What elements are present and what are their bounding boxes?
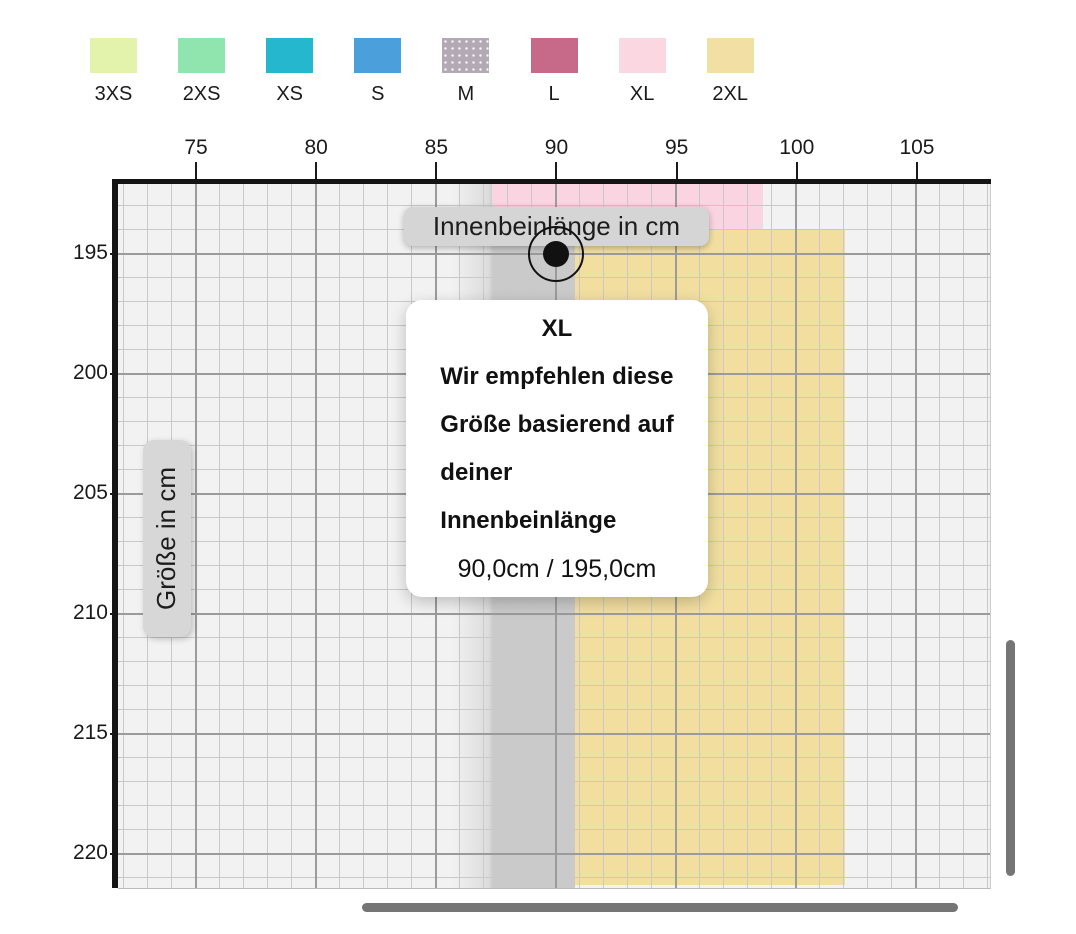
x-tick-mark	[916, 162, 918, 180]
x-tick-label: 90	[526, 136, 586, 160]
legend-label: S	[354, 83, 401, 106]
legend-label: 3XS	[90, 83, 137, 106]
legend-item-s[interactable]: S	[354, 38, 401, 106]
y-tick-label: 200	[38, 361, 108, 385]
selection-marker-dot	[543, 241, 569, 267]
x-tick-label: 105	[887, 136, 947, 160]
y-axis-label: Größe in cm	[152, 467, 183, 610]
tooltip-values: 90,0cm / 195,0cm	[458, 545, 657, 593]
tooltip-message-line: Größe basierend auf	[440, 401, 673, 449]
legend-label: 2XS	[178, 83, 225, 106]
tooltip-message-line: Innenbeinlänge	[440, 497, 673, 545]
legend-item-l[interactable]: L	[531, 38, 578, 106]
x-tick-mark	[435, 162, 437, 180]
legend-label: 2XL	[707, 83, 754, 106]
tooltip-message-line: deiner	[440, 449, 673, 497]
x-tick-mark	[195, 162, 197, 180]
x-tick-label: 85	[406, 136, 466, 160]
y-axis-label-pill: Größe in cm	[143, 440, 191, 637]
legend-swatch-xl	[619, 38, 666, 73]
tooltip-message: Wir empfehlen dieseGröße basierend aufde…	[440, 353, 673, 545]
legend-item-m[interactable]: M	[442, 38, 489, 106]
legend-item-xs[interactable]: XS	[266, 38, 313, 106]
legend-swatch-l	[531, 38, 578, 73]
y-tick-label: 215	[38, 721, 108, 745]
legend-swatch-3xs	[90, 38, 137, 73]
y-tick-label: 195	[38, 241, 108, 265]
legend-item-2xl[interactable]: 2XL	[707, 38, 754, 106]
x-tick-mark	[315, 162, 317, 180]
tooltip-message-line: Wir empfehlen diese	[440, 353, 673, 401]
x-tick-label: 80	[286, 136, 346, 160]
legend-label: XS	[266, 83, 313, 106]
x-tick-label: 75	[166, 136, 226, 160]
x-tick-mark	[555, 162, 557, 180]
x-tick-label: 100	[767, 136, 827, 160]
legend-label: L	[531, 83, 578, 106]
legend-swatch-xs	[266, 38, 313, 73]
size-chart-widget: 3XS2XSXSSMLXL2XL 7580859095100105 195200…	[0, 0, 1076, 934]
vertical-scrollbar[interactable]	[1006, 640, 1015, 876]
tooltip-size: XL	[542, 305, 573, 353]
x-tick-mark	[676, 162, 678, 180]
legend-swatch-2xl	[707, 38, 754, 73]
legend-item-xl[interactable]: XL	[619, 38, 666, 106]
x-tick-mark	[796, 162, 798, 180]
recommendation-tooltip: XL Wir empfehlen dieseGröße basierend au…	[406, 300, 708, 597]
legend-label: M	[442, 83, 489, 106]
legend-item-2xs[interactable]: 2XS	[178, 38, 225, 106]
horizontal-scrollbar[interactable]	[362, 903, 958, 912]
legend-item-3xs[interactable]: 3XS	[90, 38, 137, 106]
size-legend: 3XS2XSXSSMLXL2XL	[0, 0, 1076, 110]
legend-swatch-2xs	[178, 38, 225, 73]
y-tick-label: 205	[38, 481, 108, 505]
legend-swatch-m	[442, 38, 489, 73]
y-tick-label: 210	[38, 601, 108, 625]
legend-swatch-s	[354, 38, 401, 73]
x-tick-label: 95	[647, 136, 707, 160]
legend-label: XL	[619, 83, 666, 106]
y-tick-label: 220	[38, 841, 108, 865]
